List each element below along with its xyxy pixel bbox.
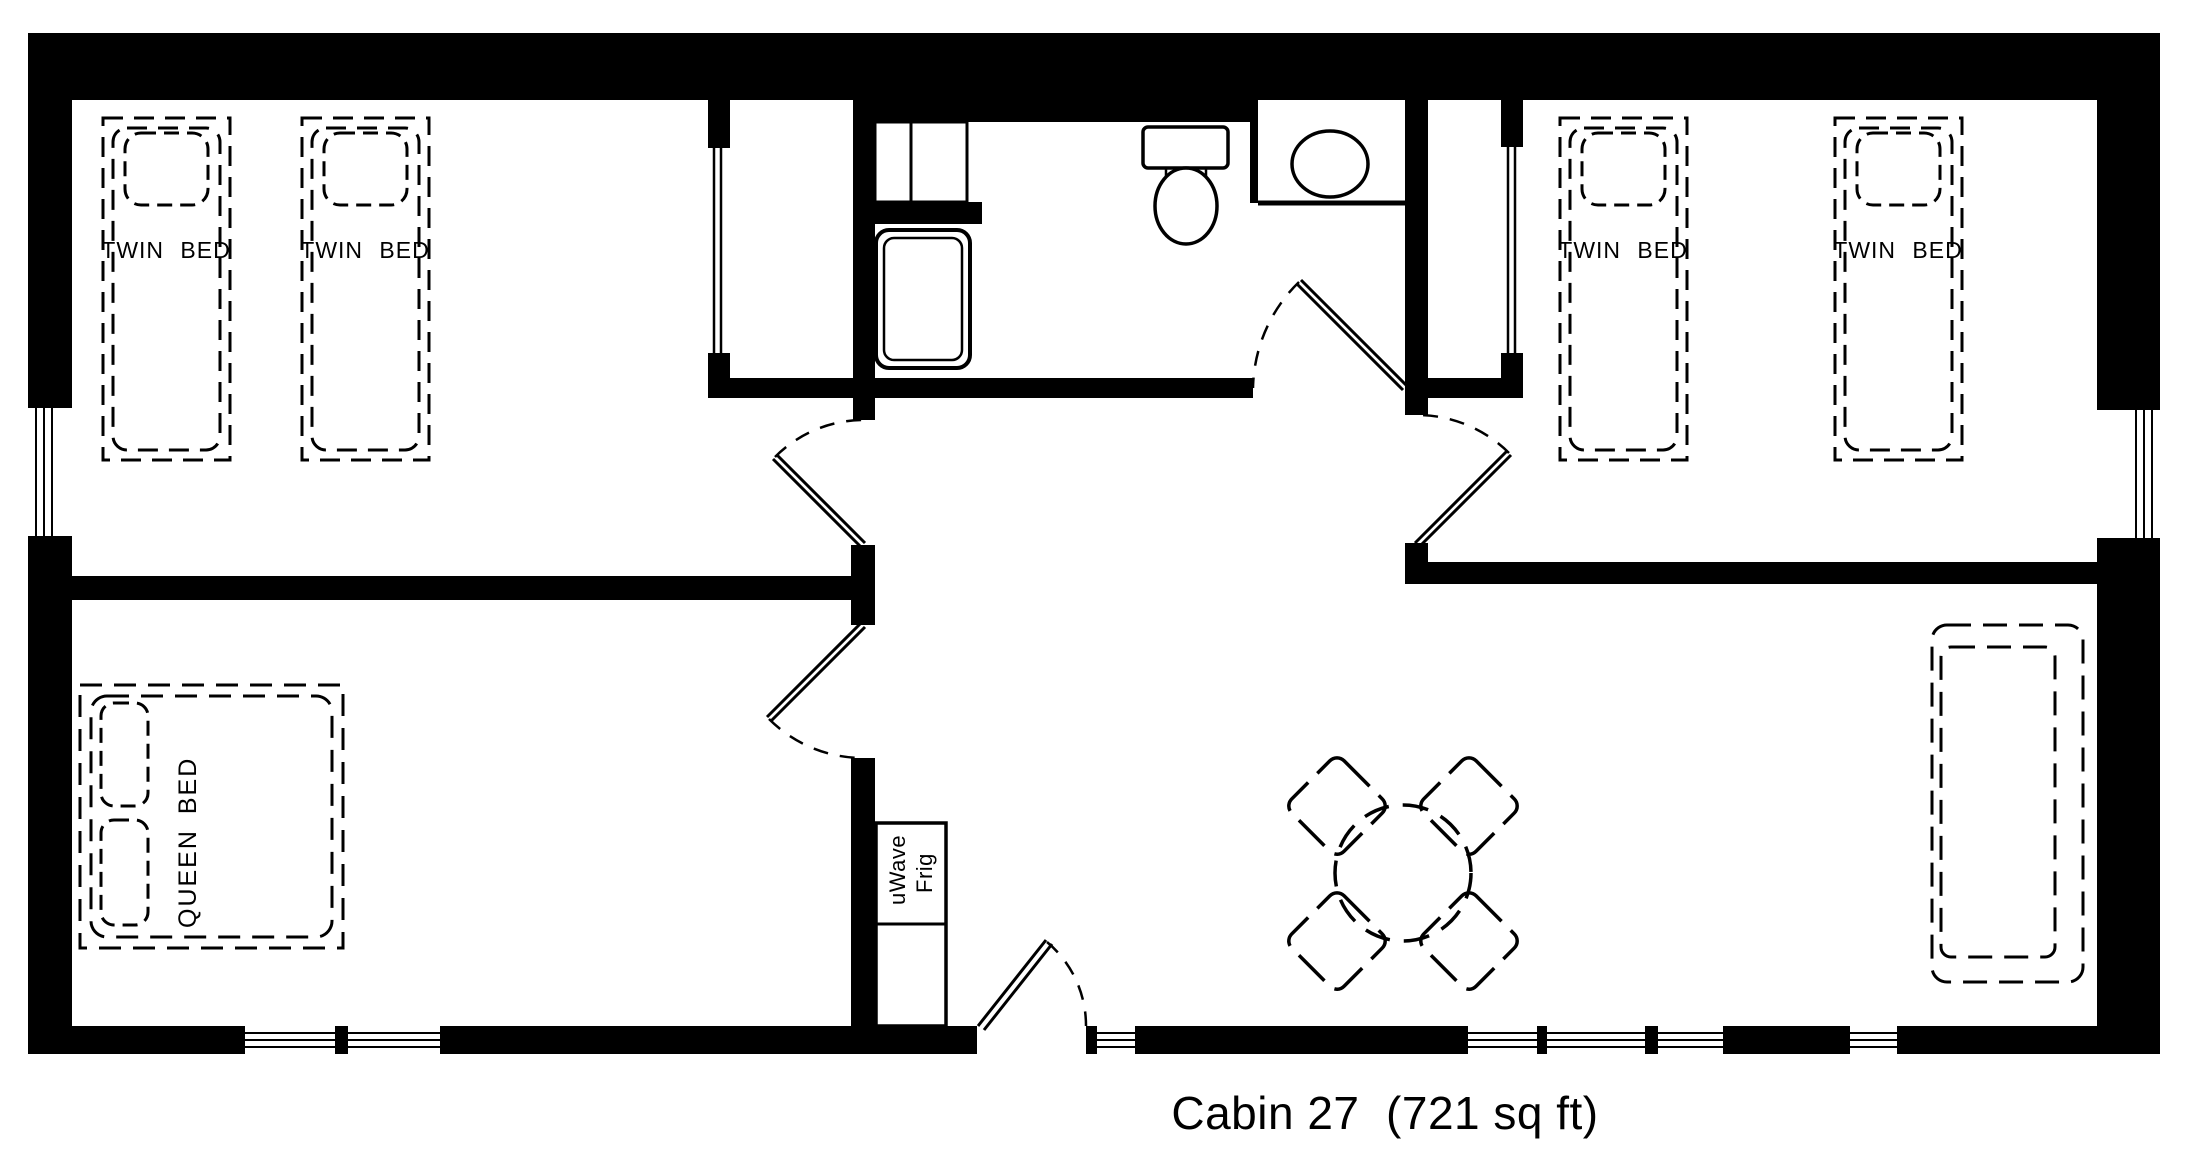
wall-top (28, 33, 2160, 100)
bed-frame (103, 118, 230, 460)
sink-counter (1258, 120, 1405, 203)
toilet (1143, 127, 1228, 244)
wall-bottom (28, 1026, 2160, 1054)
window-bottom-4 (1468, 1026, 1537, 1054)
twin-bed-2: TWIN BED (300, 118, 429, 460)
door-bedroom1 (773, 420, 865, 547)
wall-bathroom-north (853, 100, 1258, 122)
twin-bed-1: TWIN BED (101, 118, 230, 460)
door-front-entry (977, 940, 1086, 1054)
windows (28, 408, 2160, 1054)
bed-mattress (1570, 128, 1677, 450)
bed-frame (80, 685, 343, 948)
floorplan-sheet: uWave Frig TWIN BED TWIN BED TWIN BED TW… (0, 0, 2200, 1164)
bed-mattress (1845, 128, 1952, 450)
chair-sw (1285, 889, 1390, 994)
window-left (28, 408, 72, 536)
sink-basin (1292, 131, 1368, 197)
closet-right-post-top (1501, 100, 1523, 147)
queen-bed: QUEEN BED (80, 685, 343, 948)
bed-pillow-1 (101, 703, 148, 806)
bed-pillow (125, 133, 208, 205)
wall-hub-stub (851, 545, 875, 625)
kitchenette-unit: uWave Frig (876, 823, 946, 1026)
couch (1932, 625, 2083, 982)
wall-bedroom1-south (72, 576, 851, 600)
bed-pillow (1857, 133, 1940, 205)
wall-sink-alcove (1250, 122, 1258, 203)
window-bottom-1 (245, 1026, 335, 1054)
window-bottom-7 (1850, 1026, 1897, 1054)
bathroom-closet-shelves (860, 122, 982, 224)
closet-right-post-bottom (1501, 353, 1523, 398)
wall-bathroom-east (1405, 100, 1428, 415)
wall-queenroom-east (851, 758, 875, 1026)
chair-se (1417, 889, 1522, 994)
bed-frame (302, 118, 429, 460)
plan-caption: Cabin 27 (721 sq ft) (1171, 1087, 1598, 1139)
toilet-bowl (1155, 168, 1217, 244)
microwave-label: uWave (885, 835, 910, 905)
bed-pillow-2 (101, 820, 148, 925)
couch-outline (1932, 625, 2083, 982)
bed-frame (1560, 118, 1687, 460)
chair-ne (1417, 754, 1522, 859)
twin-bed-label: TWIN BED (1558, 237, 1687, 263)
bed-frame (1835, 118, 1962, 460)
window-bottom-2 (348, 1026, 440, 1054)
wall-left (28, 33, 72, 1054)
bed-pillow (324, 133, 407, 205)
couch-seat (1941, 647, 2055, 957)
twin-bed-4: TWIN BED (1833, 118, 1962, 460)
queen-bed-label: QUEEN BED (174, 757, 202, 928)
wall-right (2097, 33, 2160, 1054)
bed-pillow (1582, 133, 1665, 205)
window-bottom-6 (1658, 1026, 1723, 1054)
closet-left-post-bottom (708, 353, 730, 398)
window-bottom-5 (1547, 1026, 1645, 1054)
bed-mattress (113, 128, 220, 450)
door-bedroom2 (1415, 415, 1511, 547)
wall-bathroom-west (853, 100, 875, 420)
dining-set (1285, 754, 1522, 994)
door-bathroom (1253, 280, 1407, 390)
wall-bedroom2-door-block (1405, 543, 1428, 584)
closet-left-post-top (708, 100, 730, 148)
floorplan-drawing: uWave Frig TWIN BED TWIN BED TWIN BED TW… (0, 0, 2200, 1164)
twin-bed-label: TWIN BED (101, 237, 230, 263)
door-queenroom (767, 623, 865, 758)
wall-bathroom-south-left (708, 378, 1253, 398)
chair-nw (1285, 754, 1390, 859)
toilet-tank (1143, 127, 1228, 168)
twin-bed-label: TWIN BED (1833, 237, 1962, 263)
exterior-walls (28, 33, 2160, 1054)
window-bottom-3 (1097, 1026, 1135, 1054)
window-right (2097, 410, 2160, 538)
bed-mattress (91, 696, 332, 937)
fridge-label: Frig (912, 853, 937, 893)
shower (876, 230, 970, 368)
wall-bedroom2-south (1428, 562, 2097, 584)
dining-table (1335, 805, 1471, 941)
twin-bed-3: TWIN BED (1558, 118, 1687, 460)
twin-bed-label: TWIN BED (300, 237, 429, 263)
bed-mattress (312, 128, 419, 450)
